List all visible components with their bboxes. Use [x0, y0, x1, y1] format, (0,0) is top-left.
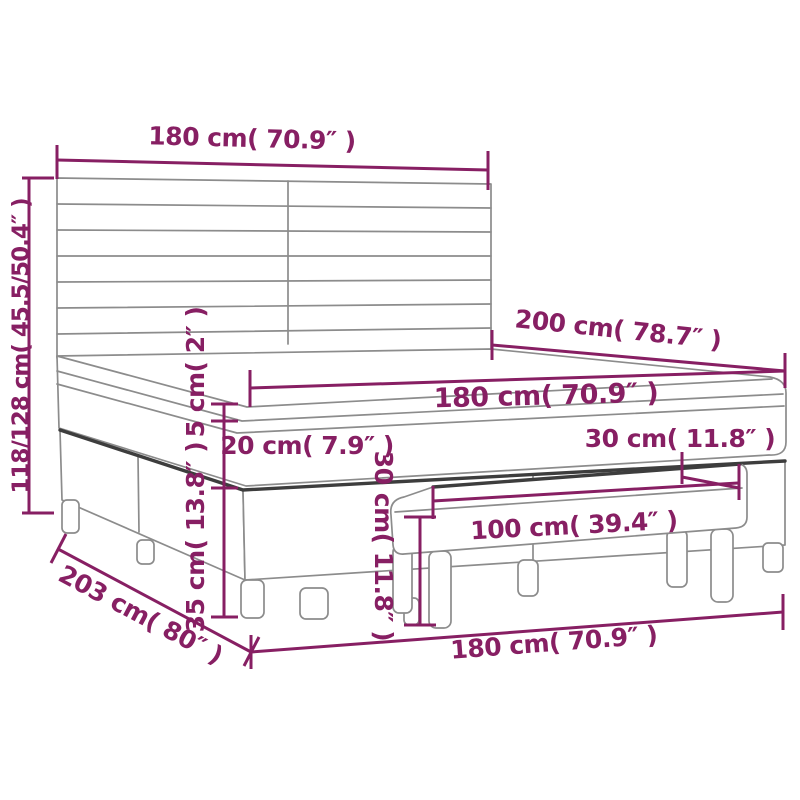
dim-bench-height-label: 30 cm( 11.8″ ): [369, 451, 398, 641]
dim-bed-width-bottom-label: 180 cm( 70.9″ ): [449, 620, 658, 664]
dim-mattress-height-label: 20 cm( 7.9″ ): [220, 431, 394, 460]
dim-bed-height-label: 118/128 cm( 45.5/50.4″ ): [9, 198, 35, 493]
bench-leg: [429, 551, 451, 628]
dim-bed-length-label: 200 cm( 78.7″ ): [514, 304, 723, 355]
bed-leg: [137, 540, 154, 564]
dim-bench-depth-label: 30 cm( 11.8″ ): [585, 424, 775, 453]
dim-box-spring-height-label: 35 cm( 13.8″ ): [181, 442, 210, 632]
bed-leg: [62, 500, 79, 533]
bed-leg: [300, 588, 328, 619]
dim-bed-width-bottom: 180 cm( 70.9″ ): [251, 594, 783, 669]
bed-leg: [763, 543, 783, 572]
box-side-seam: [138, 456, 139, 532]
bench-leg: [711, 529, 733, 602]
bed-dimension-diagram: 180 cm( 70.9″ ) 118/128 cm( 45.5/50.4″ )…: [0, 0, 800, 800]
dim-headboard-width-label: 180 cm( 70.9″ ): [148, 121, 356, 155]
dim-bed-height: 118/128 cm( 45.5/50.4″ ): [9, 178, 55, 513]
bench-leg: [667, 530, 687, 587]
headboard: [57, 178, 491, 358]
dim-mattress-width-label: 180 cm( 70.9″ ): [433, 378, 658, 415]
bench-leg: [518, 560, 538, 596]
dim-topper-height-label: 5 cm( 2″ ): [181, 307, 210, 438]
diagram-canvas: 180 cm( 70.9″ ) 118/128 cm( 45.5/50.4″ )…: [0, 0, 800, 800]
bed-leg: [241, 580, 264, 618]
